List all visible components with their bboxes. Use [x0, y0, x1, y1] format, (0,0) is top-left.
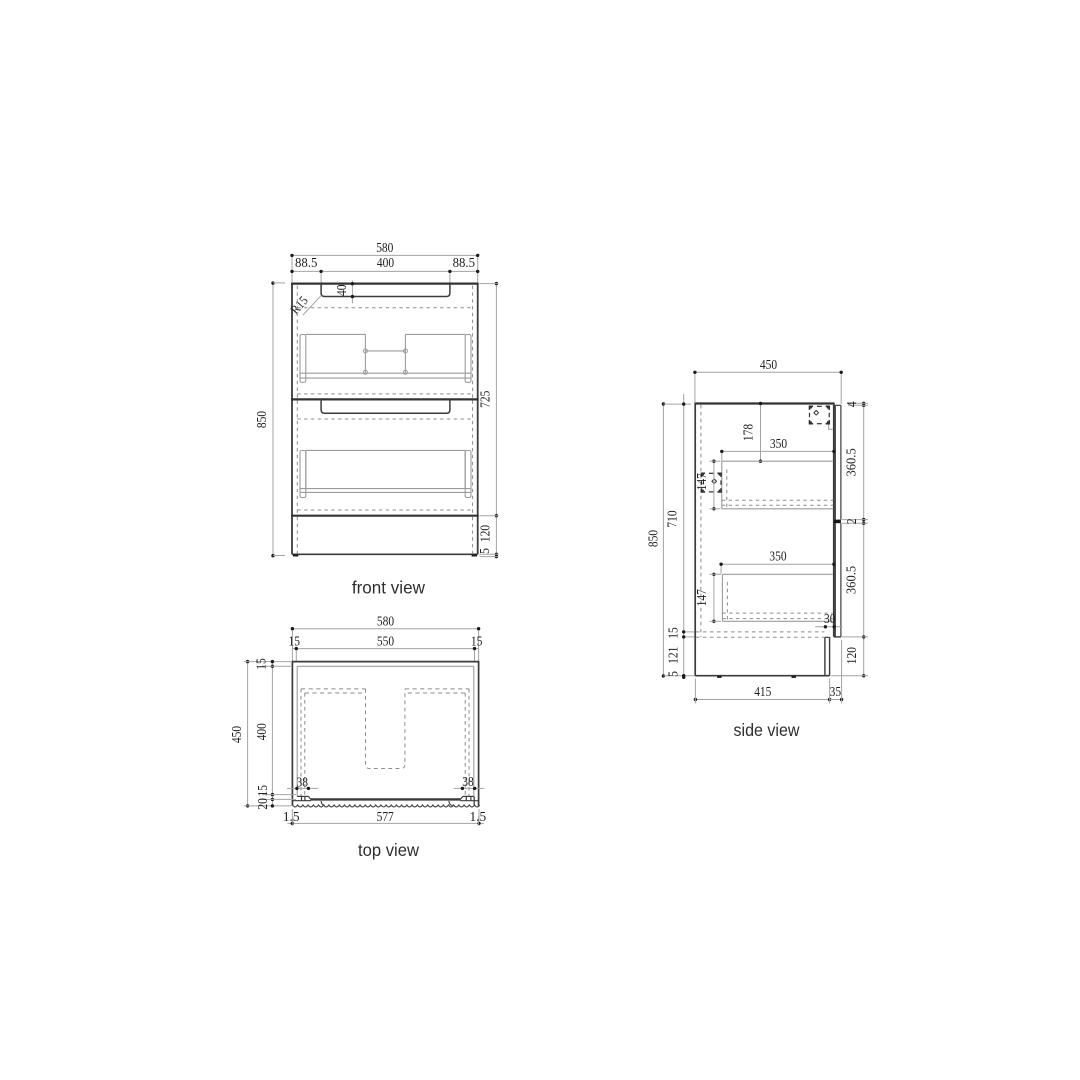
svg-text:35: 35 — [830, 685, 842, 700]
svg-text:710: 710 — [665, 510, 680, 527]
svg-text:R15: R15 — [287, 293, 311, 317]
svg-text:1.5: 1.5 — [283, 810, 300, 825]
svg-text:178: 178 — [742, 424, 757, 441]
svg-text:400: 400 — [377, 256, 394, 271]
svg-text:1.5: 1.5 — [469, 810, 486, 825]
svg-text:577: 577 — [377, 810, 394, 825]
svg-text:415: 415 — [754, 685, 771, 700]
svg-text:121: 121 — [667, 647, 682, 664]
svg-text:15: 15 — [256, 785, 271, 797]
svg-text:450: 450 — [760, 358, 777, 373]
svg-text:360.5: 360.5 — [844, 448, 859, 476]
svg-text:850: 850 — [255, 411, 270, 428]
svg-text:350: 350 — [770, 437, 787, 452]
svg-text:360.5: 360.5 — [844, 566, 859, 594]
svg-text:850: 850 — [646, 530, 661, 547]
svg-text:15: 15 — [471, 634, 483, 649]
svg-text:120: 120 — [478, 525, 493, 542]
svg-text:350: 350 — [769, 550, 786, 565]
svg-text:147: 147 — [695, 589, 710, 606]
svg-text:450: 450 — [230, 726, 245, 743]
svg-text:top view: top view — [358, 840, 419, 860]
svg-text:5: 5 — [667, 671, 682, 677]
svg-text:15: 15 — [667, 627, 682, 639]
svg-text:20: 20 — [256, 798, 271, 810]
svg-text:15: 15 — [255, 658, 270, 670]
svg-text:side view: side view — [734, 720, 800, 740]
svg-text:4: 4 — [845, 401, 860, 407]
svg-text:38: 38 — [296, 776, 308, 791]
svg-text:front view: front view — [352, 578, 425, 598]
svg-text:38: 38 — [462, 775, 474, 790]
svg-text:88.5: 88.5 — [453, 256, 475, 271]
svg-text:580: 580 — [377, 615, 394, 630]
svg-text:400: 400 — [255, 723, 270, 740]
svg-text:550: 550 — [377, 634, 394, 649]
svg-text:40: 40 — [335, 284, 350, 296]
svg-text:2: 2 — [845, 519, 860, 525]
svg-text:725: 725 — [478, 391, 493, 408]
svg-text:120: 120 — [845, 647, 860, 664]
svg-text:88.5: 88.5 — [295, 256, 317, 271]
svg-text:30: 30 — [824, 612, 836, 627]
svg-text:147: 147 — [695, 473, 710, 490]
svg-text:15: 15 — [288, 634, 300, 649]
svg-text:5: 5 — [478, 548, 493, 554]
svg-text:580: 580 — [376, 241, 393, 256]
